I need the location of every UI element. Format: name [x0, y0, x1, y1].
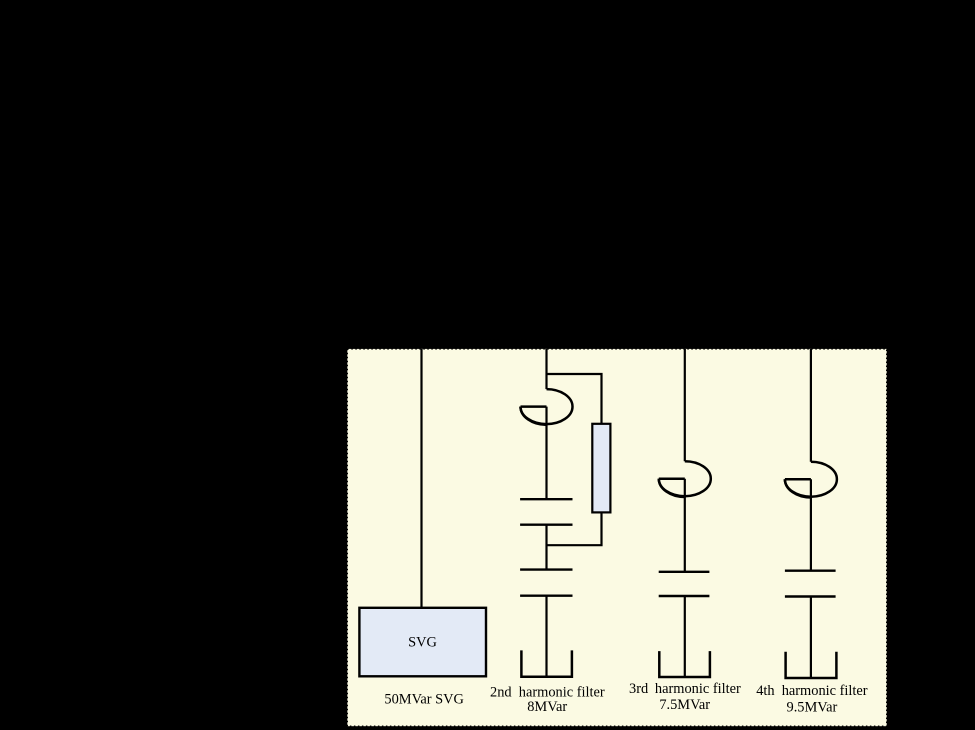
svg-text:2nd: 2nd [490, 685, 512, 701]
svg-text:4th: 4th [756, 683, 774, 699]
svg-text:9.5MVar: 9.5MVar [787, 699, 838, 715]
svg-text:7.5MVar: 7.5MVar [659, 697, 710, 713]
svg-text:harmonic filter: harmonic filter [655, 681, 741, 697]
svg-text:3rd: 3rd [629, 681, 649, 697]
svg-text:50MVar SVG: 50MVar SVG [384, 691, 464, 707]
svg-text:SVG: SVG [408, 635, 437, 651]
svg-text:harmonic filter: harmonic filter [782, 683, 868, 699]
svg-text:8MVar: 8MVar [527, 699, 567, 715]
